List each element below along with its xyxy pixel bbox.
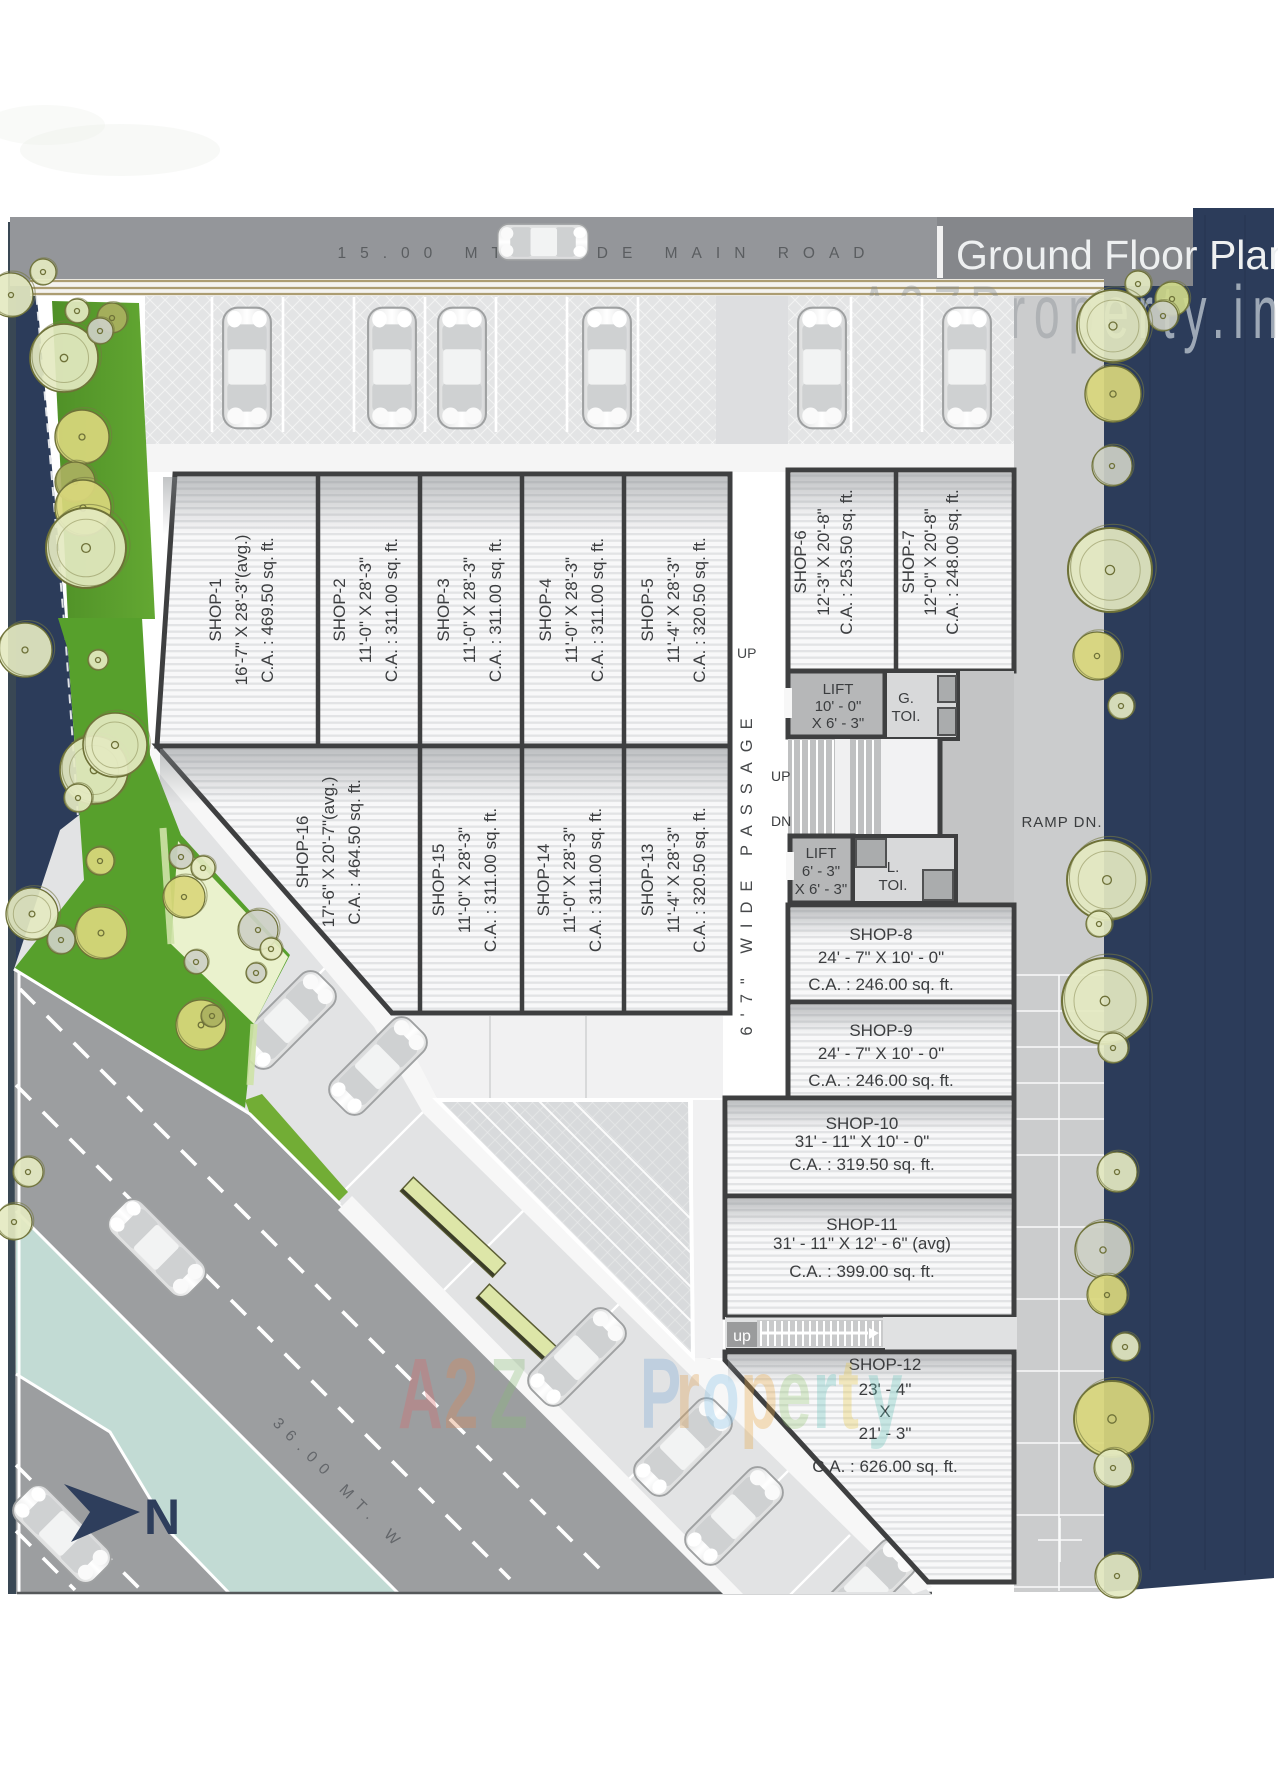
svg-text:SHOP-15: SHOP-15 [429,844,448,917]
svg-text:12'-3" X 20'-8": 12'-3" X 20'-8" [814,508,833,615]
svg-text:SHOP-14: SHOP-14 [534,844,553,917]
svg-text:SHOP-16: SHOP-16 [293,816,312,889]
svg-text:X 6' - 3": X 6' - 3" [812,715,864,732]
svg-text:RAMP DN.: RAMP DN. [1021,814,1102,831]
svg-text:TOI.: TOI. [892,708,921,725]
svg-text:SHOP-8: SHOP-8 [849,925,912,944]
svg-text:p: p [740,1338,778,1450]
svg-text:o: o [702,1338,740,1450]
svg-text:24' - 7" X 10' - 0": 24' - 7" X 10' - 0" [818,1044,944,1063]
svg-text:C.A. : 319.50 sq. ft.: C.A. : 319.50 sq. ft. [789,1155,935,1174]
svg-text:t: t [838,1338,859,1450]
svg-text:6' - 3": 6' - 3" [802,863,840,880]
svg-text:11'-0" X 28'-3": 11'-0" X 28'-3" [356,557,375,663]
svg-text:UP: UP [771,768,790,784]
svg-text:C.A. : 464.50 sq. ft.: C.A. : 464.50 sq. ft. [345,779,364,925]
svg-text:C.A. : 311.00 sq. ft.: C.A. : 311.00 sq. ft. [481,808,500,952]
svg-text:SHOP-6: SHOP-6 [791,530,810,593]
svg-text:31' - 11" X 12' - 6" (avg): 31' - 11" X 12' - 6" (avg) [773,1234,951,1253]
svg-text:X 6' - 3": X 6' - 3" [795,881,847,898]
svg-text:y: y [868,1338,902,1450]
svg-text:C.A. : 320.50 sq. ft.: C.A. : 320.50 sq. ft. [690,807,709,953]
svg-text:SHOP-9: SHOP-9 [849,1021,912,1040]
svg-text:C.A. : 311.00 sq. ft.: C.A. : 311.00 sq. ft. [486,538,505,682]
svg-text:15.00 MT. WIDE MAIN ROAD: 15.00 MT. WIDE MAIN ROAD [338,245,879,262]
svg-text:31' - 11" X 10' - 0": 31' - 11" X 10' - 0" [795,1132,929,1151]
svg-text:L.: L. [887,859,900,876]
svg-text:11'-0" X 28'-3": 11'-0" X 28'-3" [455,827,474,933]
svg-text:2: 2 [444,1338,478,1450]
svg-text:C.A. : 246.00 sq. ft.: C.A. : 246.00 sq. ft. [808,975,954,994]
svg-text:SHOP-2: SHOP-2 [330,578,349,641]
svg-text:TOI.: TOI. [879,877,908,894]
svg-text:C.A. : 320.50 sq. ft.: C.A. : 320.50 sq. ft. [690,537,709,683]
svg-text:e: e [777,1338,811,1450]
svg-text:24' - 7" X 10' - 0": 24' - 7" X 10' - 0" [818,948,944,967]
svg-text:C.A. : 469.50 sq. ft.: C.A. : 469.50 sq. ft. [258,537,277,683]
svg-text:P: P [640,1338,681,1450]
svg-text:N: N [144,1489,180,1545]
svg-text:C.A. : 246.00 sq. ft.: C.A. : 246.00 sq. ft. [808,1071,954,1090]
svg-text:6'7" WIDE PASSAGE: 6'7" WIDE PASSAGE [738,708,756,1035]
svg-text:11'-0" X 28'-3": 11'-0" X 28'-3" [560,827,579,933]
svg-text:C.A. : 311.00 sq. ft.: C.A. : 311.00 sq. ft. [586,808,605,952]
svg-text:UP: UP [737,645,756,661]
svg-text:C.A. : 626.00 sq. ft.: C.A. : 626.00 sq. ft. [812,1457,958,1476]
svg-text:16'-7" X 28'-3"(avg.): 16'-7" X 28'-3"(avg.) [232,535,251,686]
svg-text:G.: G. [898,690,914,707]
svg-text:DN: DN [771,813,791,829]
svg-text:SHOP-13: SHOP-13 [638,844,657,917]
svg-text:C.A. : 311.00 sq. ft.: C.A. : 311.00 sq. ft. [588,538,607,682]
svg-text:11'-4" X 28'-3": 11'-4" X 28'-3" [664,557,683,663]
svg-text:C.A. : 311.00 sq. ft.: C.A. : 311.00 sq. ft. [382,538,401,682]
svg-text:Z: Z [490,1338,528,1450]
svg-text:SHOP-1: SHOP-1 [206,578,225,641]
svg-text:SHOP-3: SHOP-3 [434,578,453,641]
svg-text:SHOP-11: SHOP-11 [826,1215,898,1234]
svg-text:C.A. : 253.50 sq. ft.: C.A. : 253.50 sq. ft. [837,489,856,635]
svg-text:LIFT: LIFT [823,681,854,698]
svg-text:SHOP-10: SHOP-10 [826,1114,899,1133]
svg-text:11'-4" X 28'-3": 11'-4" X 28'-3" [664,827,683,933]
svg-text:C.A. : 399.00 sq. ft.: C.A. : 399.00 sq. ft. [789,1262,935,1281]
svg-text:12'-0" X 20'-8": 12'-0" X 20'-8" [921,508,940,615]
svg-text:r: r [676,1338,700,1450]
svg-text:r: r [813,1338,837,1450]
svg-text:11'-0" X 28'-3": 11'-0" X 28'-3" [562,557,581,663]
svg-text:SHOP-4: SHOP-4 [536,578,555,641]
svg-text:LIFT: LIFT [806,845,837,862]
svg-text:11'-0" X 28'-3": 11'-0" X 28'-3" [460,557,479,663]
svg-text:C.A. : 248.00 sq. ft.: C.A. : 248.00 sq. ft. [943,489,962,635]
svg-text:SHOP-5: SHOP-5 [638,578,657,641]
svg-text:10' - 0": 10' - 0" [815,698,862,715]
svg-text:17'-6" X 20'-7"(avg.): 17'-6" X 20'-7"(avg.) [319,777,338,928]
svg-text:A: A [398,1338,443,1450]
svg-text:SHOP-7: SHOP-7 [899,530,918,593]
